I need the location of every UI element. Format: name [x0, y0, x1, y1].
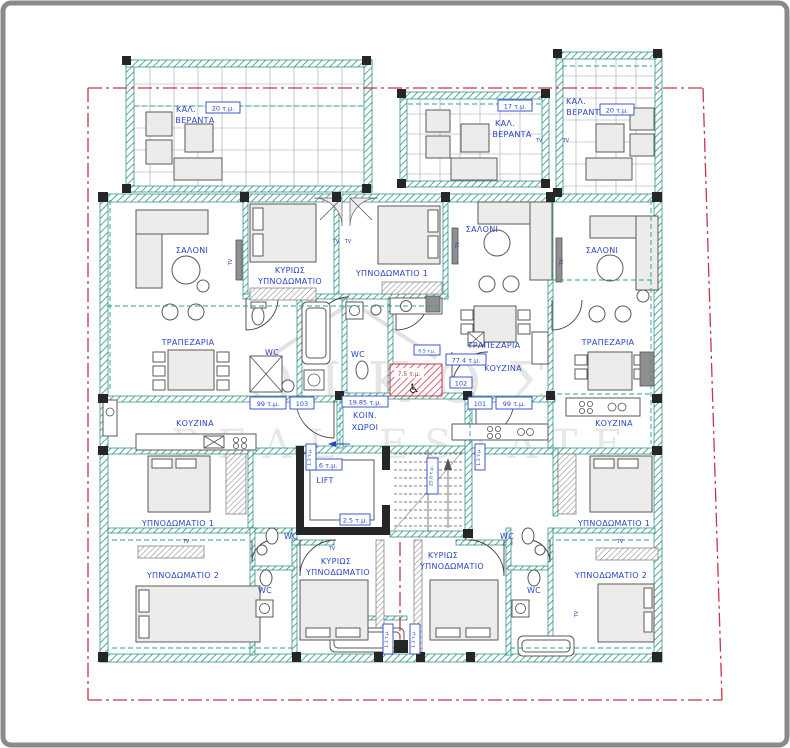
master-bl-label1: ΚΥΡΙΩΣ	[321, 557, 351, 566]
unit101-number-stamp: 101	[474, 400, 486, 408]
unit101-area-stamp: 99 τ.μ.	[503, 400, 526, 408]
wc-label: WC	[284, 532, 298, 541]
kitchen-left-label: ΚΟΥΖΙΝΑ	[176, 419, 214, 428]
wardrobe	[596, 548, 658, 560]
wardrobe	[558, 454, 576, 514]
toilet	[522, 528, 534, 544]
living-right-label: ΣΑΛΟΝΙ	[586, 246, 618, 255]
common-area-stamp: 19.85 τ.μ.	[349, 399, 382, 407]
wc-label: WC	[265, 348, 279, 357]
tv-label: TV	[562, 138, 570, 144]
washer	[304, 370, 324, 390]
unit103-number-stamp: 103	[296, 400, 308, 408]
wardrobe	[250, 288, 316, 300]
wardrobe	[382, 282, 442, 294]
veranda-left-label2: ΒΕΡΑΝΤΑ	[175, 116, 215, 125]
svg-text:TV: TV	[574, 610, 580, 618]
toilet	[260, 570, 272, 586]
shaft-area-stamp: 1.3 τ.μ.	[476, 448, 482, 465]
washer	[256, 600, 273, 617]
bedroom2-br-label: ΥΠΝΟΔΩΜΑΤΙΟ 2	[574, 571, 647, 580]
unit102-number-stamp: 102	[455, 380, 467, 388]
fridge	[640, 352, 654, 386]
toilet	[266, 528, 278, 544]
common-area-label2: ΧΩΡΟΙ	[352, 423, 379, 432]
wc-label: WC	[351, 350, 365, 359]
washer	[346, 302, 363, 319]
lift-label: LIFT	[316, 476, 333, 485]
shaft-area-stamp: 1.3 τ.μ.	[307, 448, 313, 465]
veranda-left-label1: ΚΑΛ.	[176, 105, 196, 114]
wheelchair-icon: ♿	[408, 382, 420, 397]
unit102-area-stamp: 77.4 τ.μ.	[452, 357, 481, 365]
wardrobe	[138, 546, 204, 558]
svg-text:TV: TV	[182, 539, 190, 545]
veranda-middle-label2: ΒΕΡΑΝΤΑ	[492, 130, 532, 139]
basin	[257, 545, 267, 555]
dining-left	[153, 350, 229, 390]
wc-label: WC	[527, 586, 541, 595]
bedroom1-top-label: ΥΠΝΟΔΩΜΑΤΙΟ 1	[355, 269, 428, 278]
veranda-right-label1: ΚΑΛ.	[566, 97, 586, 106]
lobby-area-stamp: 2.5 τ.μ.	[343, 517, 368, 525]
bedroom1-bottom-left	[148, 454, 246, 514]
dining-left-label: ΤΡΑΠΕΖΑΡΙΑ	[161, 338, 215, 347]
shaft-area-stamp: 1.3 τ.μ.	[411, 630, 417, 647]
svg-text:TV: TV	[455, 241, 461, 249]
veranda-left-area: 20 τ.μ.	[212, 105, 235, 113]
master-bedroom-bottom-left	[300, 580, 368, 640]
dining-table	[168, 350, 214, 390]
wc-label: WC	[258, 586, 272, 595]
svg-text:TV: TV	[228, 258, 234, 266]
coffee-table	[172, 256, 200, 284]
bedroom2-bl-label: ΥΠΝΟΔΩΜΑΤΙΟ 2	[146, 571, 219, 580]
living-left-label: ΣΑΛΟΝΙ	[176, 246, 208, 255]
sofa	[636, 216, 658, 290]
bedroom1-bl-label: ΥΠΝΟΔΩΜΑΤΙΟ 1	[141, 519, 214, 528]
sink-area-stamp: 0.5 τ.μ.	[418, 349, 435, 355]
veranda-right-area: 20 τ.μ.	[606, 107, 629, 115]
wardrobe	[226, 454, 246, 514]
toilet	[356, 361, 368, 379]
svg-text:TV: TV	[332, 239, 340, 245]
washer	[512, 600, 529, 617]
master-br-label2: ΥΠΝΟΔΩΜΑΤΙΟ	[419, 562, 484, 571]
basin	[535, 545, 545, 555]
coffee-table	[597, 255, 623, 281]
dining-right-label: ΤΡΑΠΕΖΑΡΙΑ	[581, 338, 635, 347]
dining-table	[588, 352, 632, 390]
bedroom1-bottom-right	[558, 454, 652, 514]
svg-text:TV: TV	[328, 546, 336, 552]
tv-unit	[236, 240, 242, 280]
veranda-middle-area: 17 τ.μ.	[504, 103, 527, 111]
tv-label: TV	[535, 138, 543, 144]
svg-text:TV: TV	[559, 258, 565, 266]
common-area-label1: ΚΟΙΝ.	[353, 411, 377, 420]
wc-label: WC	[500, 532, 514, 541]
living-middle-label: ΣΑΛΟΝΙ	[466, 225, 498, 234]
floor-plan-drawing: ΟΙΚΟΣ REAL ESTATE ΚΑΛ. ΒΕΡΑΝΤΑ 20 τ.μ. 1…	[0, 0, 790, 748]
bed	[136, 586, 260, 642]
svg-text:TV: TV	[616, 539, 624, 545]
sofa	[530, 202, 552, 280]
veranda-middle-label1: ΚΑΛ.	[495, 119, 515, 128]
sofa	[136, 210, 208, 234]
master-top-label2: ΥΠΝΟΔΩΜΑΤΙΟ	[257, 277, 322, 286]
bedroom1-br-label: ΥΠΝΟΔΩΜΑΤΙΟ 1	[577, 519, 650, 528]
toilet	[252, 307, 264, 325]
disabled-wc-area: 7.5 τ.μ.	[398, 371, 421, 378]
basin	[371, 305, 381, 315]
master-bl-label2: ΥΠΝΟΔΩΜΑΤΙΟ	[305, 568, 370, 577]
master-top-label1: ΚΥΡΙΩΣ	[275, 266, 305, 275]
master-br-label1: ΚΥΡΙΩΣ	[428, 551, 458, 560]
unit103-area-stamp: 99 τ.μ.	[257, 400, 280, 408]
kitchen-right-label: ΚΟΥΖΙΝΑ	[595, 419, 633, 428]
kitchen-counter	[566, 398, 640, 416]
dining-middle-label: ΤΡΑΠΕΖΑΡΙΑ	[467, 341, 521, 350]
stairs-area-stamp: 25.6 τ.μ.	[429, 466, 435, 486]
basin	[282, 380, 294, 392]
master-bedroom-bottom-right	[430, 580, 498, 640]
kitchen-middle-label: ΚΟΥΖΙΝΑ	[484, 364, 522, 373]
toilet	[528, 570, 540, 586]
svg-text:TV: TV	[344, 239, 352, 245]
shaft-area-stamp: 1.3 τ.μ.	[384, 630, 390, 647]
floor-plan-page: ΟΙΚΟΣ REAL ESTATE ΚΑΛ. ΒΕΡΑΝΤΑ 20 τ.μ. 1…	[0, 0, 790, 748]
